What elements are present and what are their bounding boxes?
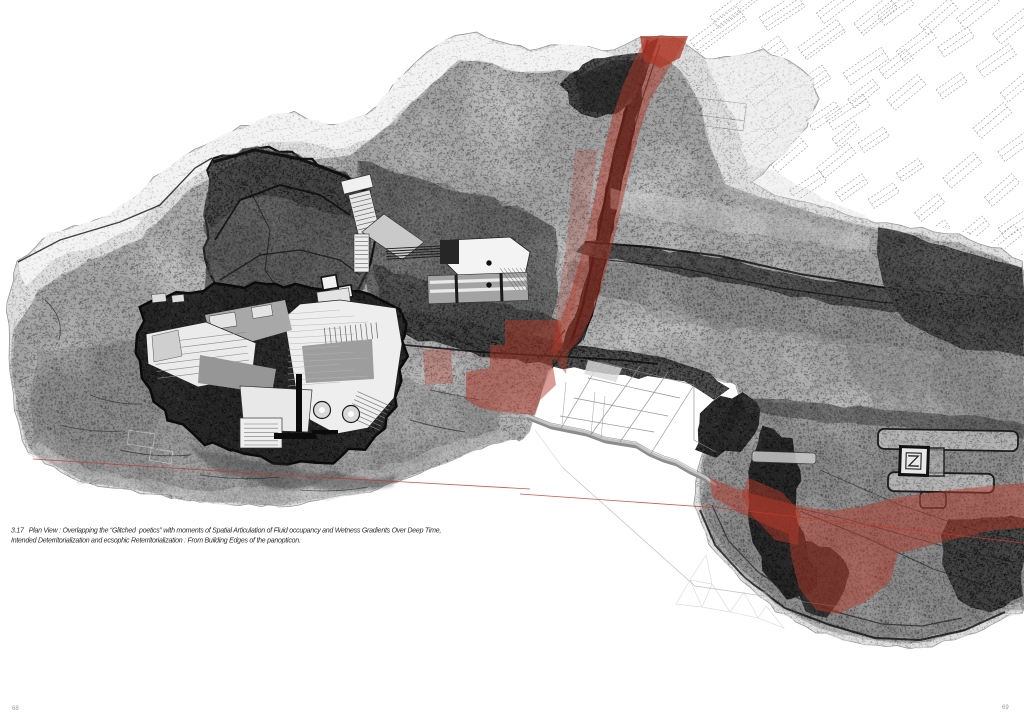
svg-text:Intended Deterritorialization: Intended Deterritorialization and ecsoph…	[11, 538, 301, 545]
svg-text:69: 69	[1002, 705, 1009, 711]
svg-text:68: 68	[12, 706, 19, 712]
svg-text:3.17 Plan View : Overlapping: 3.17 Plan View : Overlapping the “Glitch…	[11, 528, 441, 535]
